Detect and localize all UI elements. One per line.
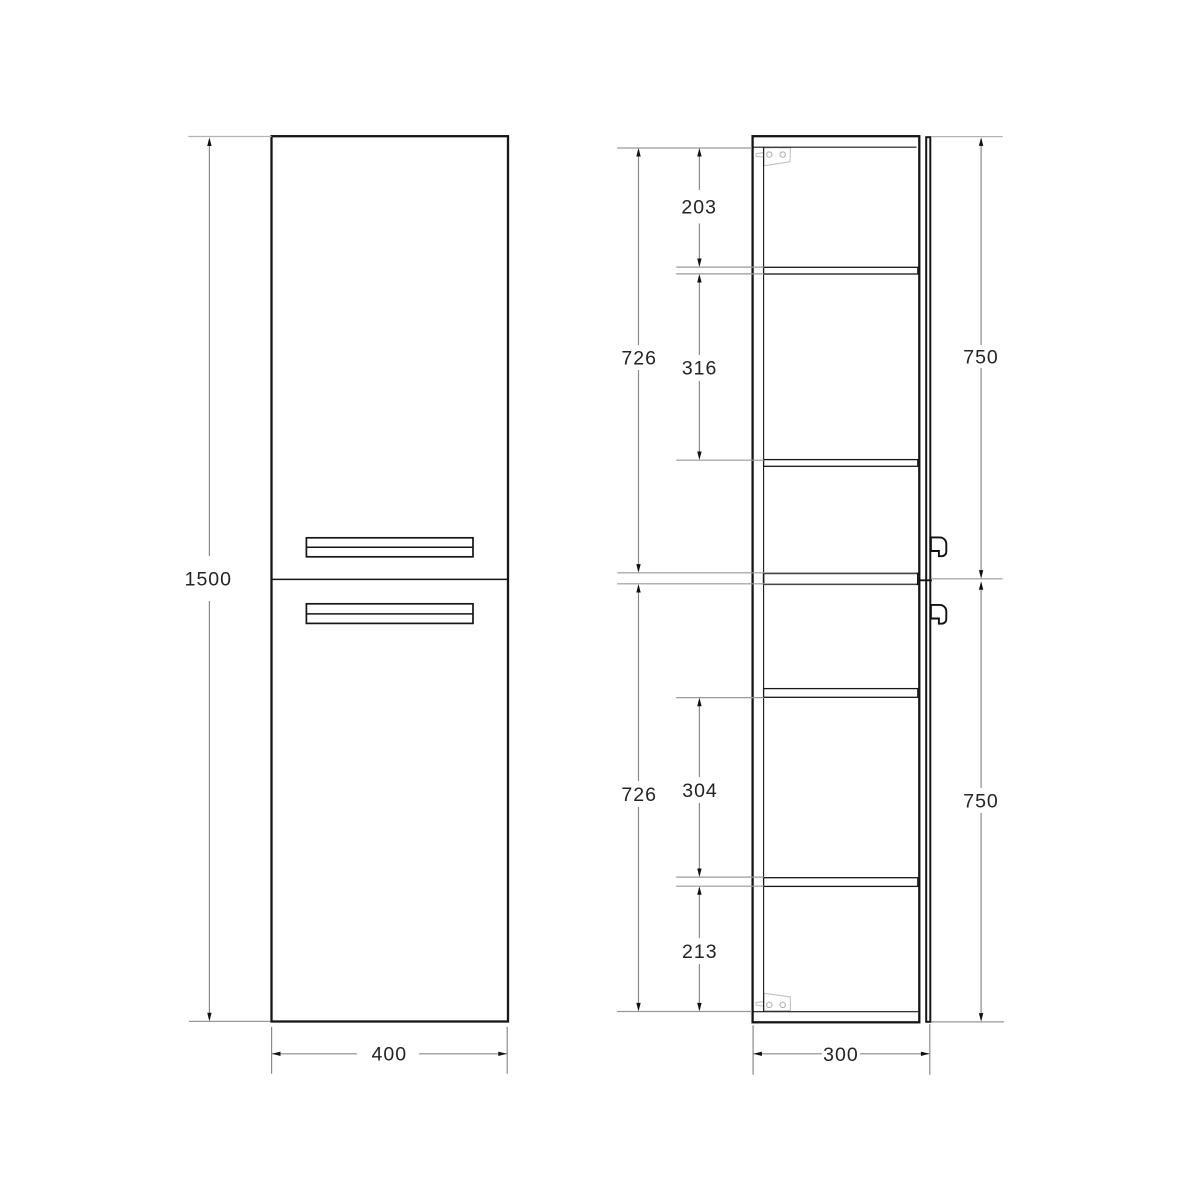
svg-text:750: 750	[963, 790, 999, 812]
svg-text:300: 300	[823, 1044, 859, 1066]
svg-text:304: 304	[682, 780, 718, 802]
svg-text:400: 400	[372, 1044, 408, 1066]
svg-text:203: 203	[681, 197, 717, 219]
svg-text:316: 316	[682, 358, 718, 380]
svg-text:1500: 1500	[185, 569, 232, 591]
svg-text:726: 726	[621, 347, 657, 369]
svg-text:750: 750	[963, 346, 999, 368]
svg-text:726: 726	[621, 784, 657, 806]
svg-text:213: 213	[682, 941, 718, 963]
